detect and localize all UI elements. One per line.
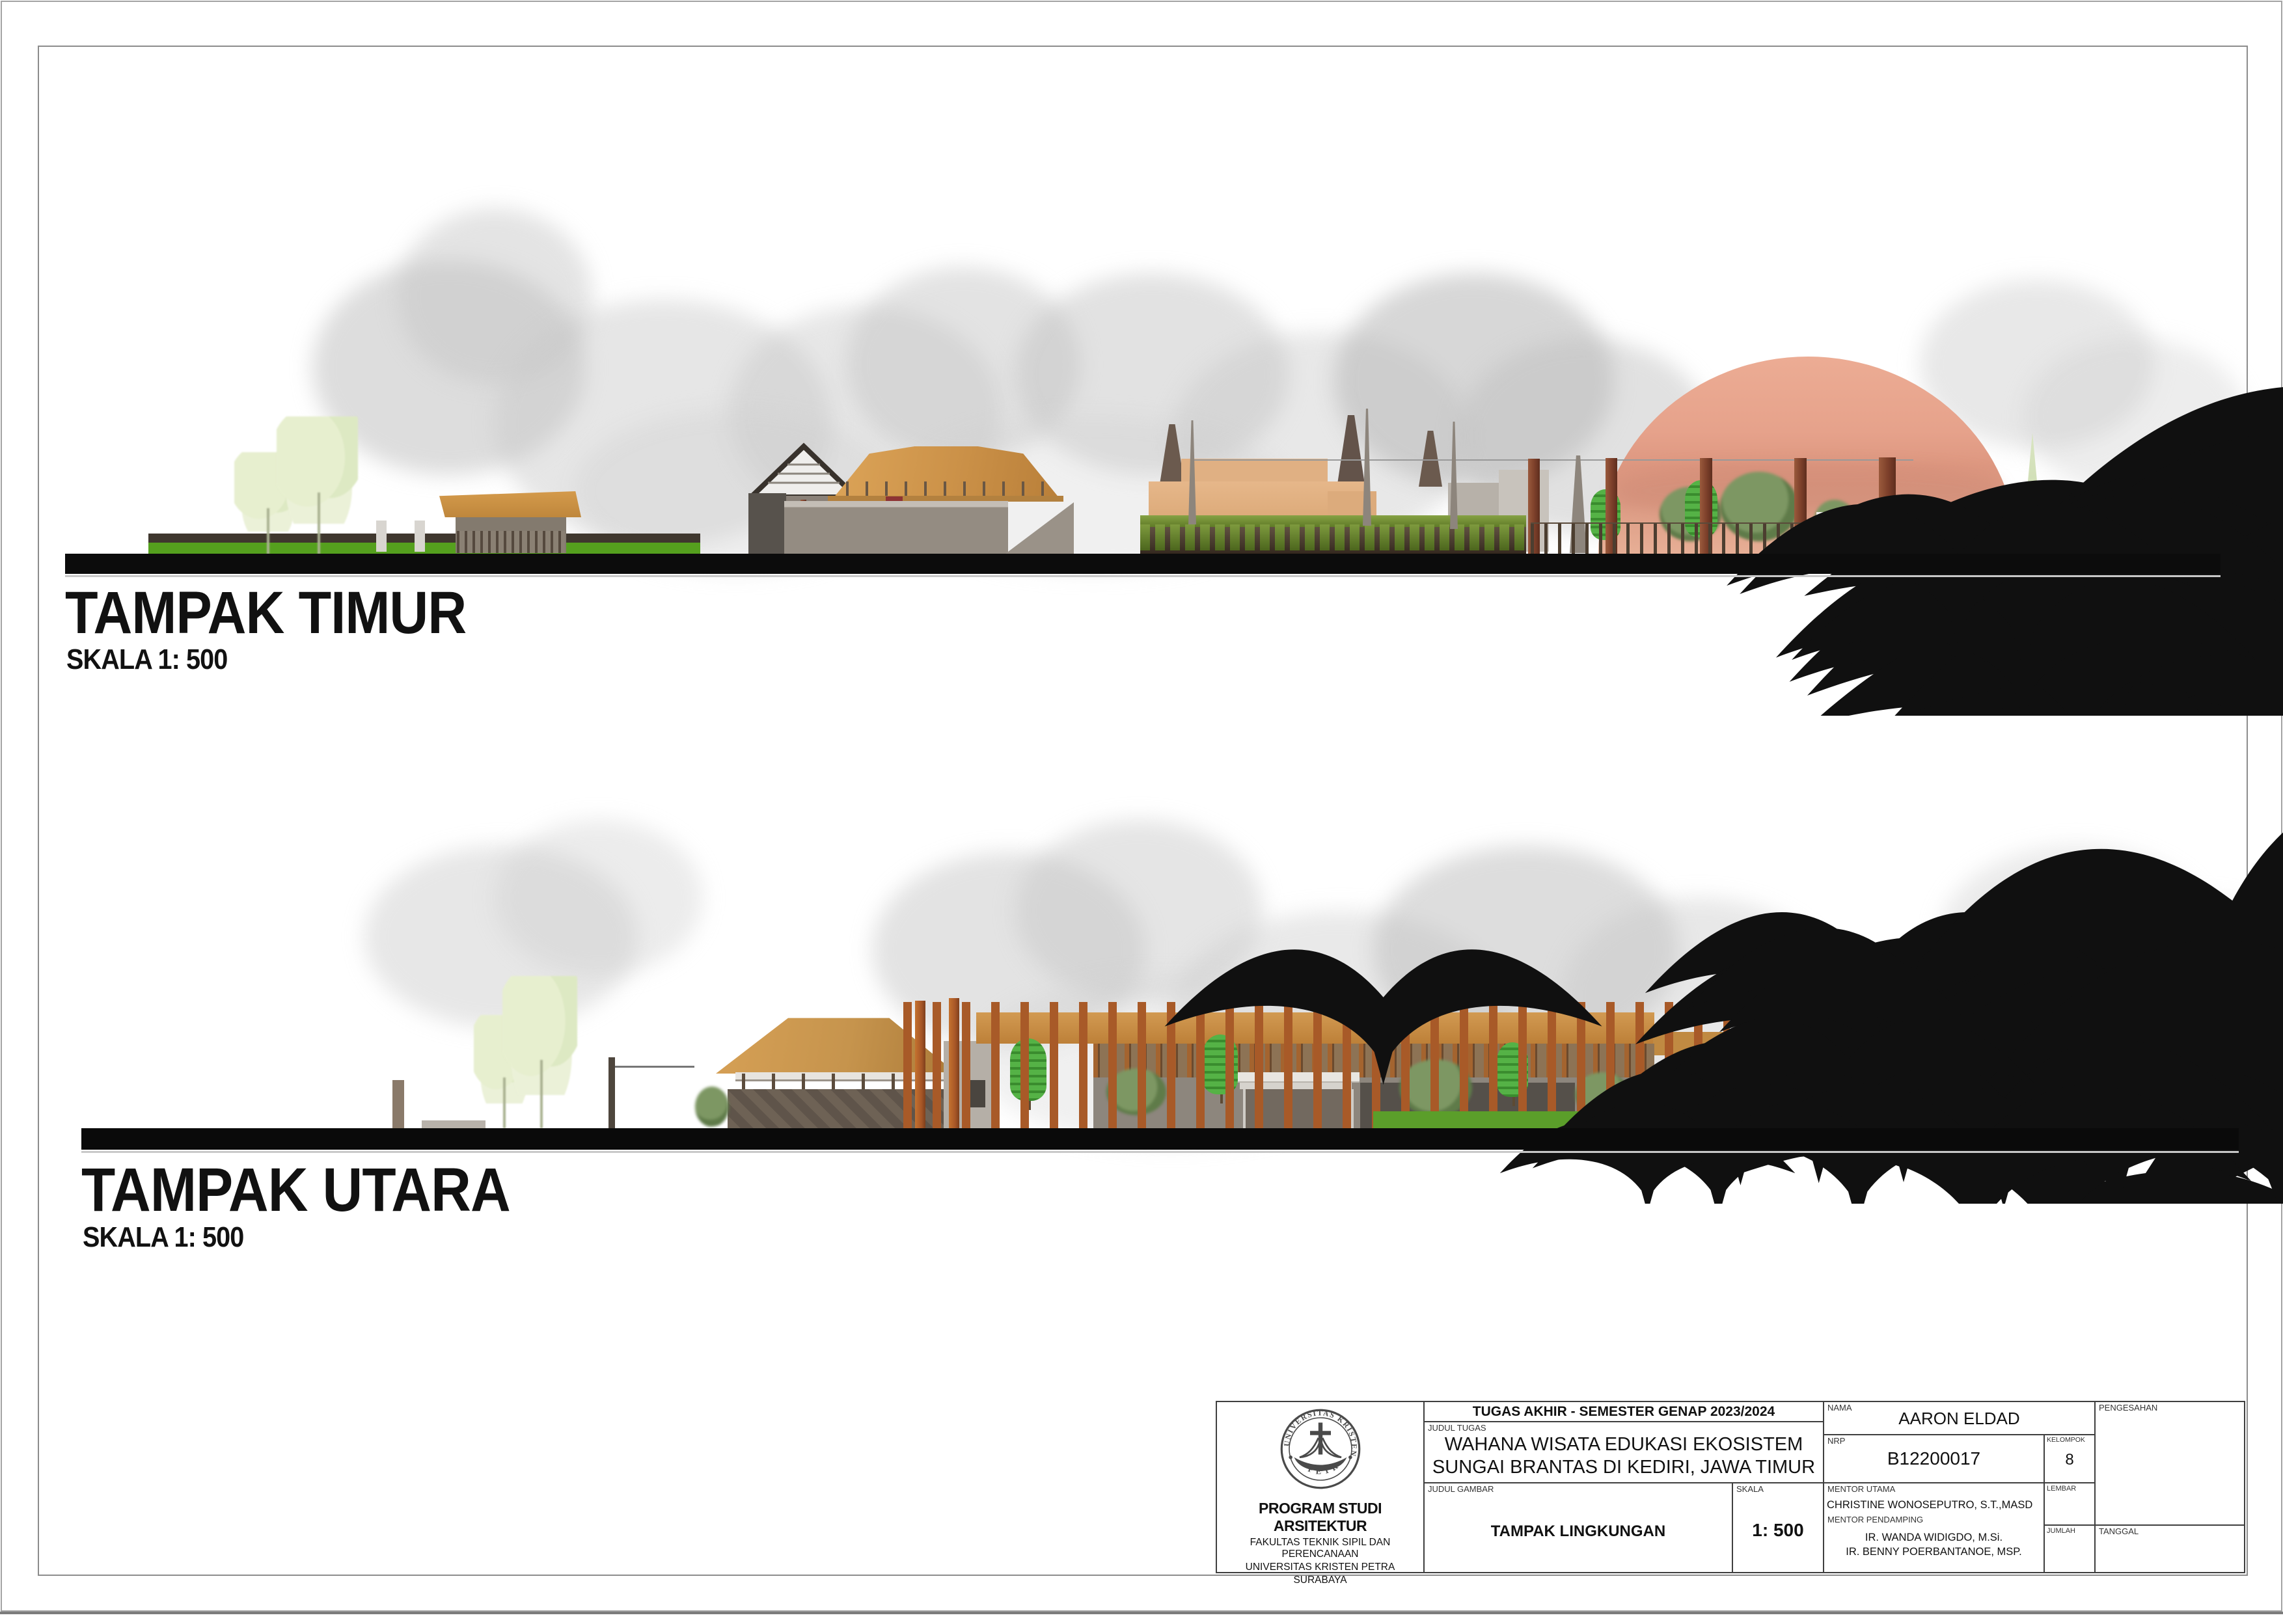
project-header-cell: TUGAS AKHIR - SEMESTER GENAP 2023/2024: [1425, 1402, 1824, 1422]
pengesahan-cell: PENGESAHAN: [2096, 1402, 2244, 1526]
tanggal-label: TANGGAL: [2096, 1526, 2244, 1537]
ground-line-bar: [81, 1128, 2239, 1150]
drawing-sheet-page: TAMPAK TIMUR SKALA 1: 500: [0, 0, 2283, 1624]
university-seal-logo: UNIVERSITAS KRISTEN PETRA: [1279, 1407, 1362, 1491]
city-name: SURABAYA: [1217, 1575, 1423, 1586]
mentor-cell: MENTOR UTAMA CHRISTINE WONOSEPUTRO, S.T.…: [1824, 1483, 2045, 1572]
nama-label: NAMA: [1824, 1402, 1855, 1414]
mentor-utama-value: CHRISTINE WONOSEPUTRO, S.T.,MASD: [1824, 1495, 2044, 1514]
skala-cell: SKALA 1: 500: [1733, 1483, 1824, 1572]
kelompok-value: 8: [2045, 1451, 2094, 1469]
title-block: UNIVERSITAS KRISTEN PETRA PROGRAM STUDI …: [1216, 1401, 2245, 1573]
elevation-title: TAMPAK UTARA: [81, 1159, 510, 1221]
pengesahan-label: PENGESAHAN: [2096, 1402, 2244, 1414]
institution-cell: UNIVERSITAS KRISTEN PETRA PROGRAM STUDI …: [1217, 1402, 1425, 1572]
judul-gambar-value: TAMPAK LINGKUNGAN: [1425, 1522, 1732, 1541]
jumlah-label: JUMLAH: [2045, 1526, 2094, 1536]
ground-shadow-line: [81, 1151, 2239, 1153]
nrp-value: B12200017: [1824, 1435, 2044, 1482]
program-name: PROGRAM STUDI ARSITEKTUR: [1217, 1500, 1423, 1535]
tanggal-cell: TANGGAL: [2096, 1526, 2244, 1572]
bottom-edge-rule: [0, 1612, 2283, 1614]
judul-tugas-label: JUDUL TUGAS: [1425, 1422, 1823, 1434]
nrp-cell: NRP B12200017: [1824, 1435, 2045, 1483]
nama-cell: NAMA AARON ELDAD: [1824, 1402, 2096, 1435]
lembar-label: LEMBAR: [2045, 1483, 2094, 1494]
lembar-cell: LEMBAR: [2045, 1483, 2096, 1526]
project-header-text: TUGAS AKHIR - SEMESTER GENAP 2023/2024: [1425, 1402, 1823, 1421]
judul-tugas-line1: WAHANA WISATA EDUKASI EKOSISTEM: [1425, 1434, 1823, 1455]
kelompok-cell: KELOMPOK 8: [2045, 1435, 2096, 1483]
ground-shadow-line: [65, 575, 2221, 577]
elevation-scale-label: SKALA 1: 500: [66, 645, 227, 674]
nrp-label: NRP: [1824, 1435, 1848, 1447]
judul-tugas-line2: SUNGAI BRANTAS DI KEDIRI, JAWA TIMUR: [1425, 1457, 1823, 1478]
ground-line-bar: [65, 554, 2221, 574]
judul-tugas-cell: JUDUL TUGAS WAHANA WISATA EDUKASI EKOSIS…: [1425, 1422, 1824, 1483]
elevation-scale-label: SKALA 1: 500: [83, 1223, 243, 1252]
north-elevation-drawing: [0, 748, 2283, 1204]
mentor-pendamping-1: IR. WANDA WIDIGDO, M.Si.: [1824, 1532, 2044, 1544]
elevation-title: TAMPAK TIMUR: [65, 583, 466, 643]
university-name: UNIVERSITAS KRISTEN PETRA: [1217, 1562, 1423, 1573]
skala-label: SKALA: [1733, 1483, 1823, 1495]
skala-value: 1: 500: [1733, 1520, 1823, 1541]
faculty-name: FAKULTAS TEKNIK SIPIL DAN PERENCANAAN: [1217, 1537, 1423, 1560]
mentor-utama-label: MENTOR UTAMA: [1824, 1483, 2044, 1495]
judul-gambar-label: JUDUL GAMBAR: [1425, 1483, 1732, 1495]
judul-gambar-cell: JUDUL GAMBAR TAMPAK LINGKUNGAN: [1425, 1483, 1733, 1572]
nama-value: AARON ELDAD: [1824, 1402, 2094, 1435]
mentor-pendamping-2: IR. BENNY POERBANTANOE, MSP.: [1824, 1546, 2044, 1558]
kelompok-label: KELOMPOK: [2045, 1435, 2094, 1446]
jumlah-cell: JUMLAH: [2045, 1526, 2096, 1572]
mentor-pendamping-label: MENTOR PENDAMPING: [1824, 1514, 2044, 1526]
